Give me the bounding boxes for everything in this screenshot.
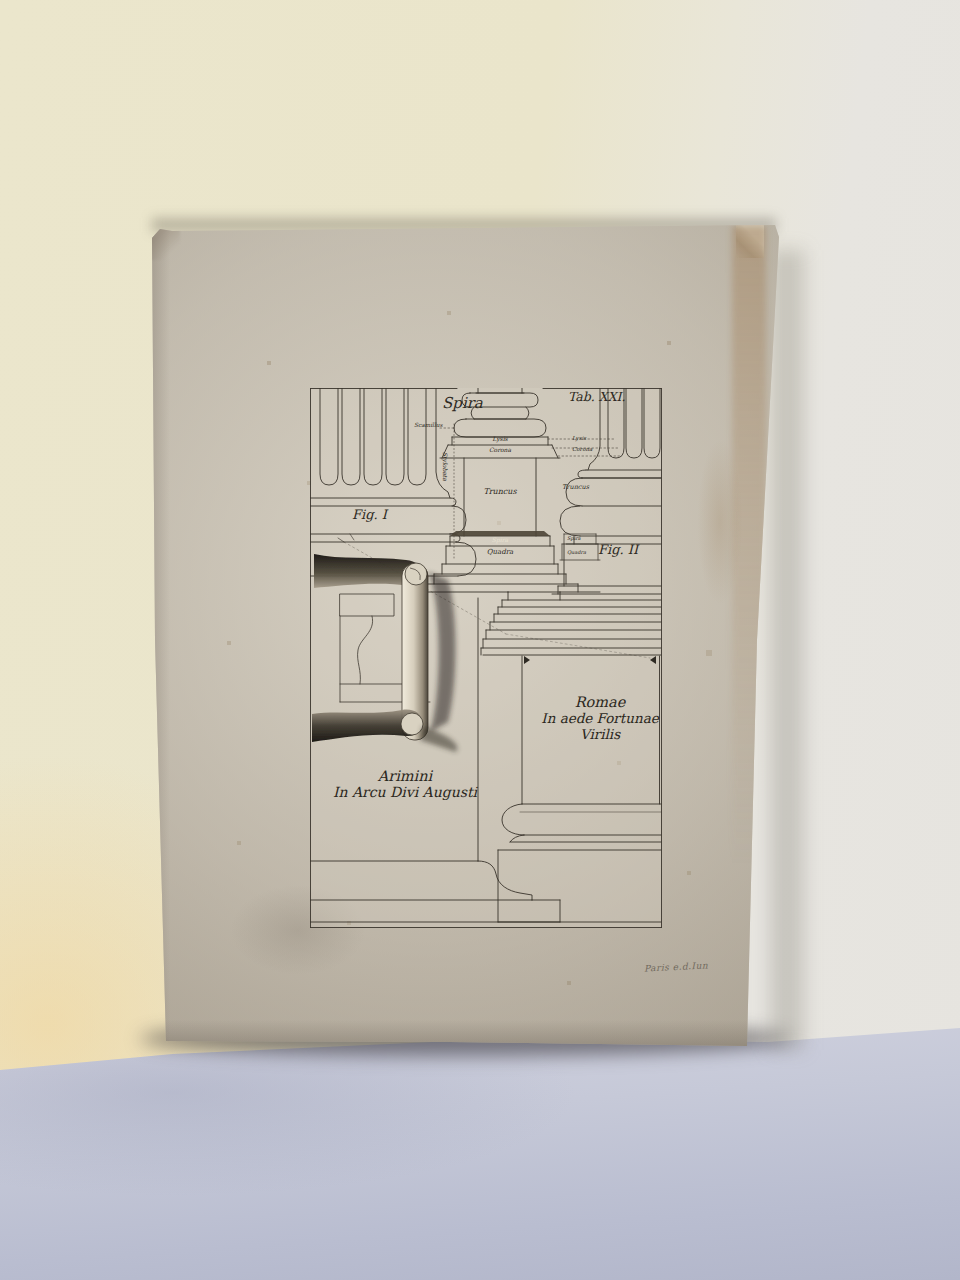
fig2-label: Fig. II <box>598 543 638 556</box>
curled-band <box>312 554 457 752</box>
engraving-linework <box>310 388 662 928</box>
label-quadra: Quadra <box>487 549 513 556</box>
fig1-caption: Arimini In Arcu Divi Augusti <box>320 768 490 800</box>
fig1-label: Fig. I <box>352 508 387 521</box>
label-truncus: Truncus <box>483 488 516 496</box>
tab-number: Tab. XXI. <box>568 391 625 404</box>
fig1-caption-line1: Arimini <box>320 768 490 784</box>
paper-edge-shade-left <box>148 222 170 1050</box>
label-lysis: Lysis <box>492 436 507 442</box>
label-lysis-right: Lysis <box>572 436 586 442</box>
wall-shadow <box>770 250 804 1050</box>
engraved-plate: Spira Tab. XXI. Scamillus Lysis Corona L… <box>310 388 662 928</box>
photo-scene: Spira Tab. XXI. Scamillus Lysis Corona L… <box>0 0 960 1280</box>
fig2-caption-line2: In aede Fortunae <box>515 710 685 726</box>
fig1-caption-line2: In Arcu Divi Augusti <box>320 784 490 800</box>
fig2-caption-line3: Virilis <box>515 726 685 742</box>
foxing-speckles <box>148 222 150 224</box>
label-corona-right: Corona <box>572 447 592 453</box>
spira-title: Spira <box>442 396 483 411</box>
label-truncus-right: Truncus <box>562 484 589 491</box>
label-quadra-right: Quadra <box>567 550 586 555</box>
fig2-caption: Romae In aede Fortunae Virilis <box>515 694 685 742</box>
label-stylobata: Stylobata <box>442 452 448 481</box>
fig2-caption-line1: Romae <box>515 694 685 710</box>
paper-stain <box>690 412 750 632</box>
label-corona: Corona <box>489 447 511 453</box>
label-scamillus: Scamillus <box>414 423 442 429</box>
label-spira-right: Spira <box>567 536 581 541</box>
label-spira-band: Spira <box>492 537 508 543</box>
